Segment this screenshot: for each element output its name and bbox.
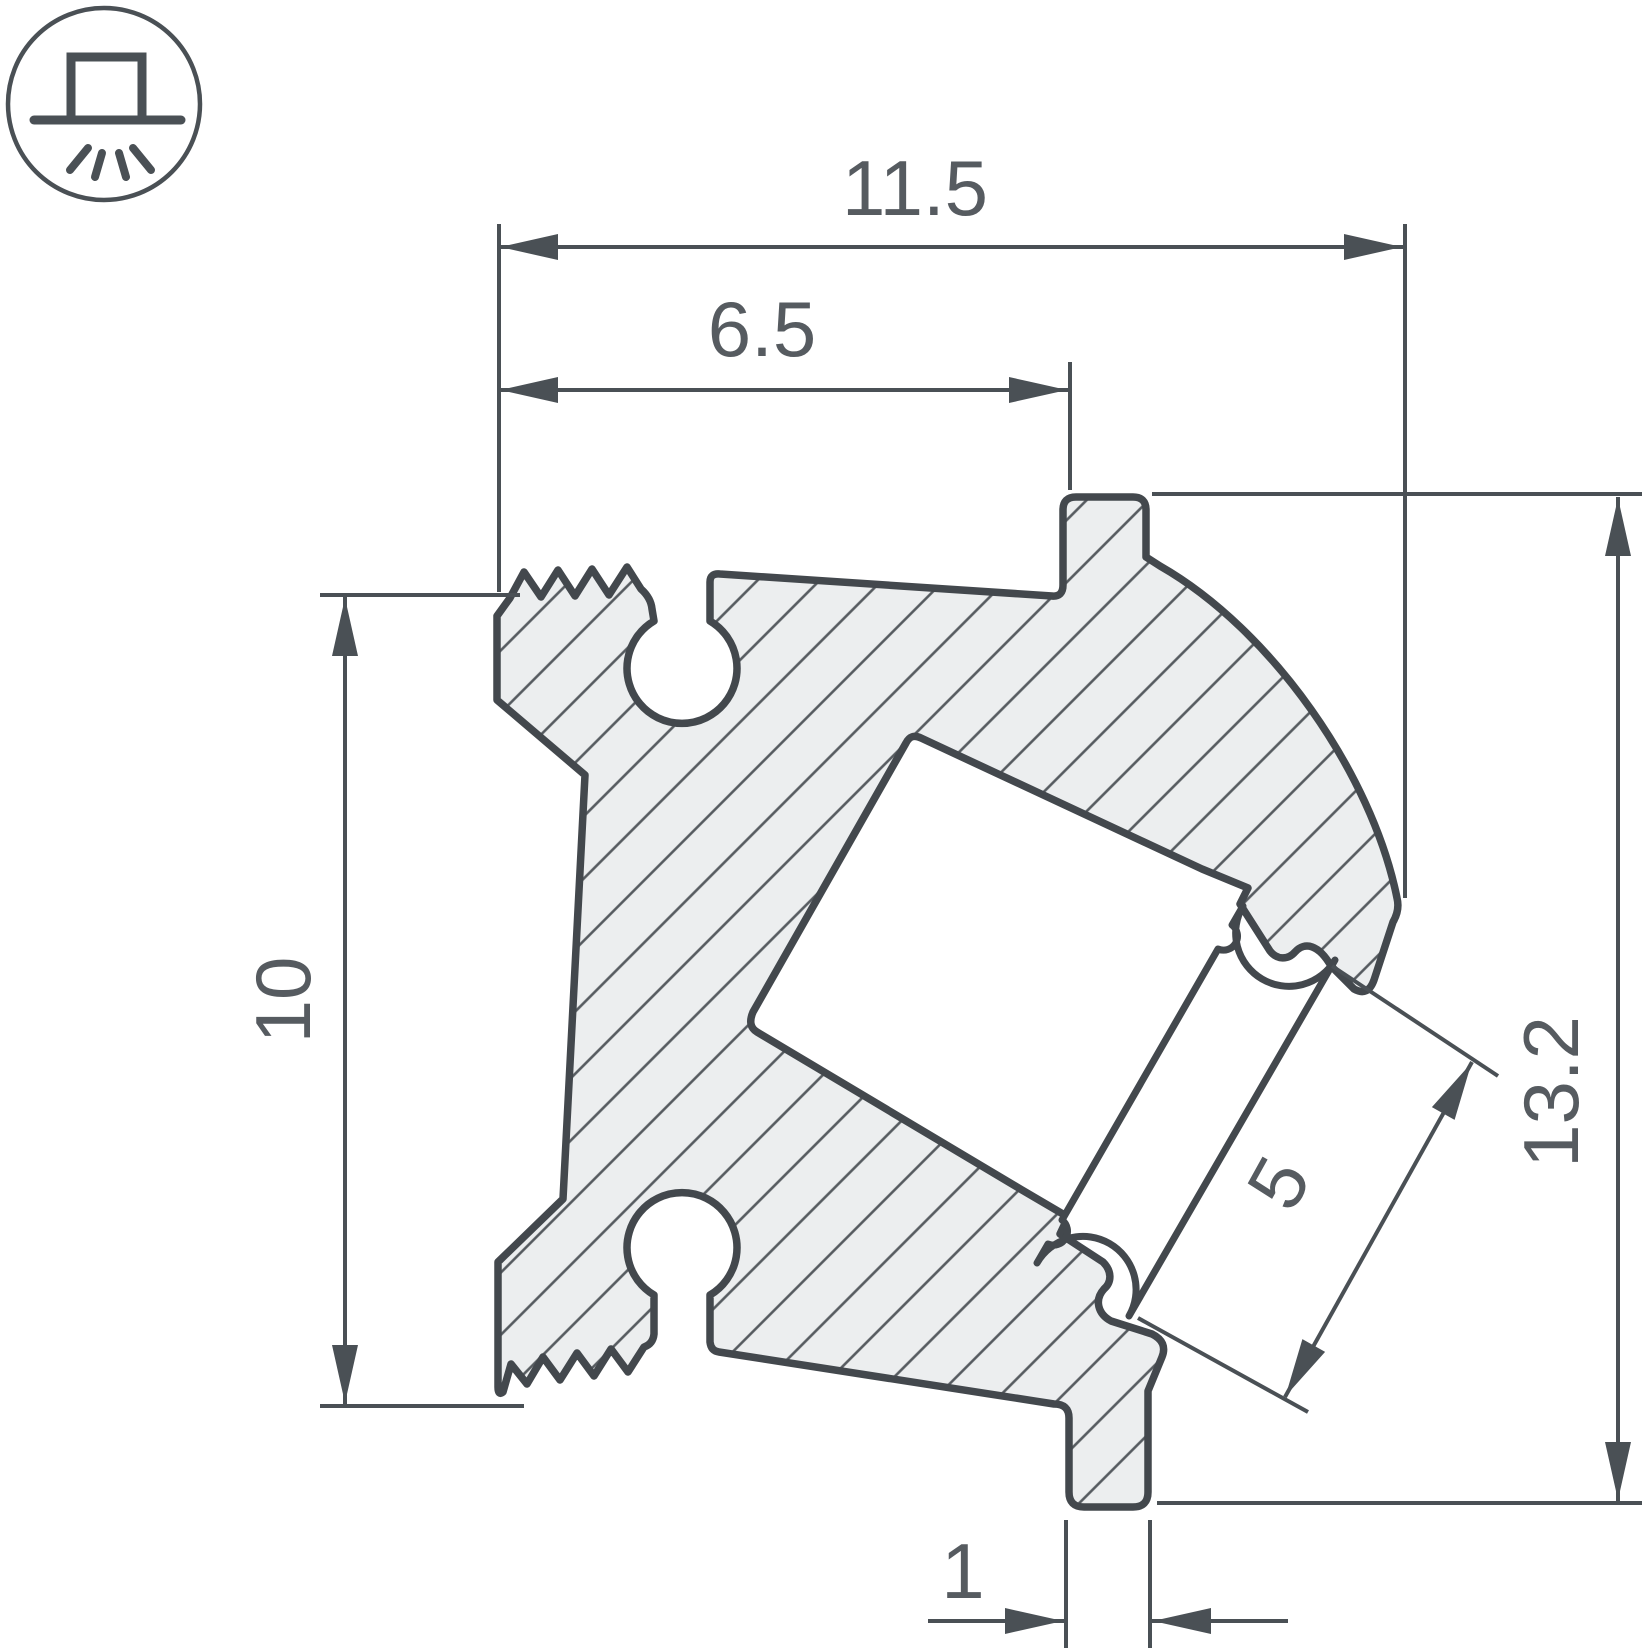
dimension-inner-width: 6.5 <box>499 285 1070 490</box>
dimension-line <box>1285 1062 1472 1397</box>
dimension-label-inner-width: 6.5 <box>708 285 816 373</box>
dimension-label-diffuser-length: 5 <box>1229 1143 1327 1224</box>
drawing-canvas: 11.5 6.5 10 13.2 5 1 <box>0 0 1648 1648</box>
dimension-foot-width: 1 <box>928 1520 1288 1648</box>
extension-line <box>1332 966 1498 1076</box>
icon-fixture-box <box>71 57 142 120</box>
dimension-label-foot-width: 1 <box>941 1527 984 1615</box>
icon-light-rays <box>70 148 151 177</box>
surface-mounted-downlight-icon <box>8 8 200 200</box>
dimension-left-height: 10 <box>239 595 524 1406</box>
dimension-label-overall-width: 11.5 <box>842 144 988 232</box>
dimension-label-left-height: 10 <box>239 957 327 1044</box>
icon-circle <box>8 8 200 200</box>
dimension-label-overall-height: 13.2 <box>1507 1016 1595 1168</box>
extension-line <box>1138 1318 1308 1412</box>
